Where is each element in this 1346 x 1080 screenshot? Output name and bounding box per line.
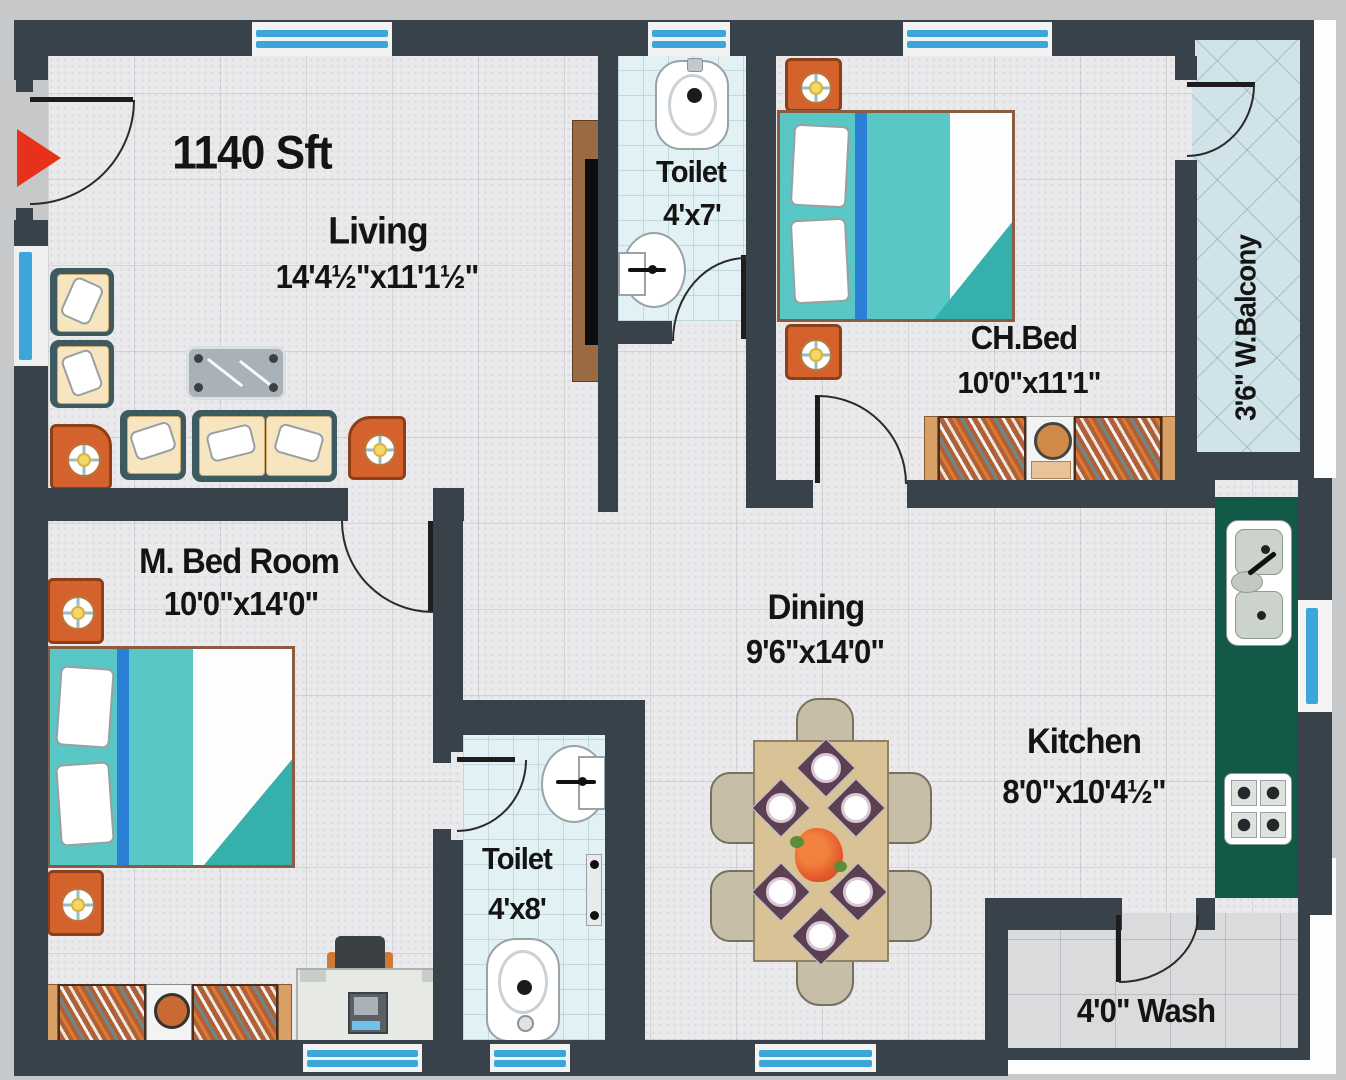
kitchen-dims: 8'0"x10'4½" bbox=[1002, 773, 1165, 811]
plate-center bbox=[835, 787, 877, 829]
plate-center bbox=[805, 747, 847, 789]
plate-center bbox=[760, 871, 802, 913]
window-top-chbed bbox=[903, 22, 1052, 56]
desk-corner bbox=[300, 970, 326, 982]
lamp bbox=[800, 339, 832, 371]
toilet-bottom-label: Toilet bbox=[482, 841, 552, 877]
wall-mbed-right-lower bbox=[433, 840, 463, 1044]
laptop-keyboard bbox=[352, 1021, 380, 1030]
leaf bbox=[834, 861, 847, 872]
kitchen-label: Kitchen bbox=[1027, 722, 1141, 762]
nightstand bbox=[785, 324, 842, 380]
table-corner bbox=[194, 383, 203, 392]
armchair bbox=[50, 268, 114, 336]
window-bottom-dining bbox=[755, 1044, 876, 1072]
wall-balcony-right bbox=[1300, 20, 1314, 478]
wc-drain bbox=[517, 980, 532, 995]
door-stub bbox=[433, 829, 451, 840]
dining-chair bbox=[884, 772, 932, 844]
kitchen-sink bbox=[1226, 520, 1292, 646]
basin-tap bbox=[628, 268, 666, 272]
wardrobe-cabinet bbox=[58, 984, 146, 1042]
ch-bed bbox=[777, 110, 1015, 322]
basin-tap-dot bbox=[648, 265, 657, 274]
door-stub bbox=[16, 80, 33, 92]
pillow bbox=[790, 218, 850, 305]
lamp bbox=[61, 596, 95, 630]
window-glass bbox=[256, 41, 388, 48]
dressing-unit bbox=[924, 416, 1180, 482]
table-corner bbox=[269, 354, 278, 363]
laptop bbox=[348, 992, 388, 1034]
dining-chair bbox=[884, 870, 932, 942]
mbed-label: M. Bed Room bbox=[139, 542, 339, 582]
wall-chbed-right-upper bbox=[1175, 56, 1197, 80]
mirror bbox=[1034, 422, 1072, 460]
wc-rim bbox=[668, 74, 717, 136]
master-bed bbox=[47, 646, 295, 868]
wall-balcony-top bbox=[1195, 20, 1312, 40]
balcony-label: 3'6" W.Balcony bbox=[1231, 235, 1264, 421]
wardrobe-cabinet bbox=[192, 984, 278, 1042]
armchair bbox=[50, 340, 114, 408]
window-glass bbox=[307, 1050, 418, 1057]
sink-drain bbox=[1261, 545, 1270, 554]
window-glass bbox=[759, 1060, 872, 1067]
basin-tap bbox=[556, 780, 596, 784]
window-top-toilet bbox=[648, 22, 730, 56]
toilet-top-dims: 4'x7' bbox=[663, 197, 721, 233]
stool bbox=[154, 993, 190, 1029]
window-glass bbox=[907, 30, 1048, 37]
plate-center bbox=[837, 871, 879, 913]
nightstand bbox=[785, 58, 842, 112]
table-corner bbox=[269, 383, 278, 392]
wall-toilet2-right bbox=[605, 735, 645, 1044]
side-table bbox=[348, 416, 406, 480]
chbed-dims: 10'0"x11'1" bbox=[958, 365, 1101, 401]
laptop-screen bbox=[354, 997, 378, 1015]
wall-chbed-bottom-right bbox=[907, 480, 1215, 508]
sink-drain bbox=[1257, 611, 1266, 620]
wall-kitchen-bottom-stub bbox=[1196, 898, 1215, 930]
toilet-bottom-dims: 4'x8' bbox=[488, 891, 546, 927]
living-dims: 14'4½"x11'1½" bbox=[276, 258, 479, 296]
wall-left-stub bbox=[14, 220, 48, 246]
window-top-living bbox=[252, 22, 392, 56]
outer-band-bottom bbox=[1005, 1058, 1336, 1074]
lamp bbox=[800, 72, 832, 104]
window-left-living bbox=[14, 246, 48, 366]
wardrobe bbox=[46, 984, 292, 1042]
window-right-kitchen bbox=[1298, 600, 1332, 712]
window-glass bbox=[1306, 608, 1318, 704]
desk bbox=[296, 968, 452, 1042]
plate-center bbox=[760, 787, 802, 829]
dressing-cabinet bbox=[1074, 416, 1162, 482]
mbed-dims: 10'0"x14'0" bbox=[164, 585, 319, 623]
pillow bbox=[55, 665, 114, 749]
rail-dot bbox=[590, 911, 599, 920]
window-bottom-mbed bbox=[303, 1044, 422, 1072]
outer-band-right-top bbox=[1314, 20, 1336, 478]
wardrobe-center bbox=[146, 984, 192, 1042]
sofa-double bbox=[192, 410, 337, 482]
wall-toilet1-left bbox=[598, 56, 618, 512]
flower-pot bbox=[364, 434, 396, 466]
toilet-top-label: Toilet bbox=[656, 154, 726, 190]
dressing-center bbox=[1026, 416, 1074, 482]
window-glass bbox=[652, 30, 726, 37]
nightstand bbox=[47, 578, 104, 644]
window-glass bbox=[19, 252, 32, 360]
towel-rail bbox=[586, 854, 602, 926]
rail-dot bbox=[590, 860, 599, 869]
wc-drain bbox=[687, 88, 702, 103]
wall-toilet1-right bbox=[746, 56, 776, 508]
pillow bbox=[55, 761, 115, 847]
wardrobe-side bbox=[278, 984, 292, 1042]
mirror-stand bbox=[1031, 461, 1071, 479]
nightstand bbox=[47, 870, 104, 936]
bed-stripe bbox=[117, 649, 129, 865]
wall-left-lower bbox=[14, 366, 48, 1076]
lamp bbox=[61, 888, 95, 922]
side-table bbox=[50, 424, 112, 490]
area-label: 1140 Sft bbox=[172, 125, 332, 180]
wall-wash-right bbox=[1298, 915, 1310, 1052]
dressing-cabinet bbox=[938, 416, 1026, 482]
flower-pot bbox=[67, 443, 101, 477]
glass-streak bbox=[207, 358, 244, 387]
wall-chbed-bottom-left bbox=[746, 480, 813, 508]
bed-stripe bbox=[855, 113, 867, 319]
window-bottom-toilet bbox=[490, 1044, 570, 1072]
sink-faucet bbox=[1231, 571, 1263, 593]
dining-label: Dining bbox=[768, 588, 865, 628]
window-glass bbox=[907, 41, 1048, 48]
entrance-arrow-icon bbox=[17, 129, 61, 187]
basin-tap-dot bbox=[578, 777, 587, 786]
burner bbox=[1231, 780, 1257, 806]
wall-balcony-bottom bbox=[1178, 452, 1314, 480]
tv-screen bbox=[585, 159, 598, 345]
wall-toilet1-bottom bbox=[598, 321, 672, 344]
window-glass bbox=[494, 1050, 566, 1057]
toilet-wc bbox=[486, 938, 560, 1042]
wc-flush bbox=[517, 1015, 534, 1032]
wall-left-upper bbox=[14, 20, 48, 80]
wall-chbed-right-lower bbox=[1175, 160, 1197, 480]
pillow bbox=[790, 124, 850, 209]
stove bbox=[1224, 773, 1292, 845]
centerpiece-flower bbox=[795, 828, 843, 882]
burner bbox=[1260, 812, 1286, 838]
floor-plan: 1140 Sft Living 14'4½"x11'1½" Toilet 4'x… bbox=[0, 0, 1346, 1080]
window-glass bbox=[759, 1050, 872, 1057]
sofa-single bbox=[120, 410, 186, 480]
coffee-table bbox=[186, 346, 286, 400]
chbed-label: CH.Bed bbox=[971, 319, 1077, 357]
wall-wash-left bbox=[985, 898, 1008, 1062]
toilet-wc bbox=[655, 60, 729, 150]
window-glass bbox=[652, 41, 726, 48]
burner bbox=[1260, 780, 1286, 806]
wall-toilet2-top bbox=[433, 700, 645, 735]
dining-dims: 9'6"x14'0" bbox=[746, 633, 884, 671]
basin-counter bbox=[618, 252, 646, 296]
living-label: Living bbox=[328, 211, 428, 254]
wall-mbed-divider bbox=[14, 488, 348, 521]
window-glass bbox=[256, 30, 388, 37]
window-glass bbox=[494, 1060, 566, 1067]
plate-center bbox=[800, 915, 842, 957]
leaf bbox=[790, 836, 804, 848]
dining-chair bbox=[710, 870, 758, 942]
wash-label: 4'0" Wash bbox=[1077, 992, 1215, 1030]
burner bbox=[1231, 812, 1257, 838]
door-stub bbox=[16, 208, 33, 220]
window-glass bbox=[307, 1060, 418, 1067]
wc-knob bbox=[687, 58, 703, 72]
table-corner bbox=[194, 354, 203, 363]
tv-unit bbox=[572, 120, 600, 382]
door-stub bbox=[433, 752, 451, 763]
wall-wash-bottom bbox=[1005, 1048, 1310, 1060]
dressing-side bbox=[924, 416, 938, 482]
